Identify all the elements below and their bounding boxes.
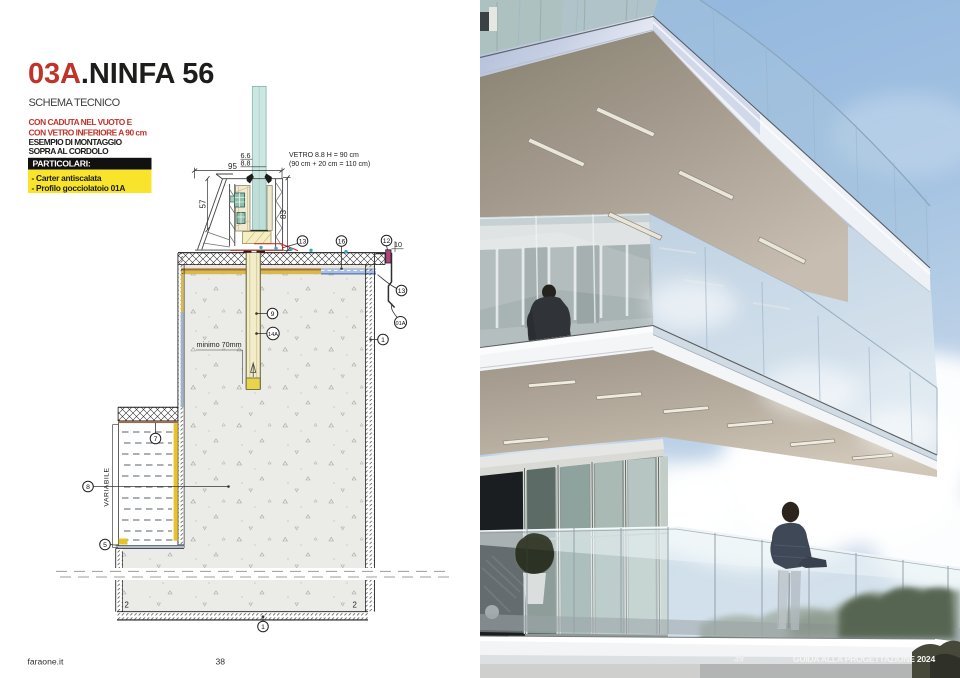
svg-text:57: 57 <box>199 199 208 208</box>
svg-text:- Carter antiscalata: - Carter antiscalata <box>32 173 102 183</box>
svg-text:VETRO 8.8 H = 90 cm: VETRO 8.8 H = 90 cm <box>289 152 359 159</box>
svg-text:minimo 70mm: minimo 70mm <box>197 340 242 349</box>
svg-text:01A: 01A <box>396 321 406 327</box>
svg-text:VARIABILE: VARIABILE <box>104 467 111 506</box>
svg-text:8: 8 <box>86 484 90 491</box>
svg-text:14A: 14A <box>268 332 278 338</box>
svg-text:12: 12 <box>383 238 391 245</box>
svg-text:95: 95 <box>228 162 237 171</box>
svg-text:GUIDA ALLA PROGETTAZIONE 2024: GUIDA ALLA PROGETTAZIONE 2024 <box>793 654 936 664</box>
svg-text:1: 1 <box>261 624 265 631</box>
svg-text:- Profilo gocciolatoio 01A: - Profilo gocciolatoio 01A <box>32 183 126 193</box>
svg-text:39: 39 <box>734 654 744 664</box>
svg-text:SCHEMA TECNICO: SCHEMA TECNICO <box>29 97 121 109</box>
svg-text:CON CADUTA NEL VUOTO E: CON CADUTA NEL VUOTO E <box>29 117 133 127</box>
svg-text:2: 2 <box>353 601 357 610</box>
svg-text:13: 13 <box>398 288 406 295</box>
svg-text:SOPRA AL CORDOLO: SOPRA AL CORDOLO <box>29 146 110 156</box>
svg-text:83: 83 <box>279 210 288 219</box>
svg-text:8.8: 8.8 <box>241 159 251 168</box>
svg-text:7: 7 <box>154 436 158 443</box>
svg-text:faraone.it: faraone.it <box>28 657 64 667</box>
svg-text:(90 cm + 20 cm = 110 cm): (90 cm + 20 cm = 110 cm) <box>289 161 370 168</box>
svg-text:13: 13 <box>299 239 307 246</box>
svg-text:9: 9 <box>271 311 275 318</box>
svg-text:2: 2 <box>125 601 129 610</box>
svg-text:38: 38 <box>216 657 226 667</box>
svg-text:5: 5 <box>103 542 107 549</box>
svg-text:PARTICOLARI:: PARTICOLARI: <box>33 159 91 169</box>
svg-text:1: 1 <box>381 337 385 344</box>
svg-text:03A.NINFA 56: 03A.NINFA 56 <box>28 58 214 90</box>
svg-text:16: 16 <box>338 239 346 246</box>
